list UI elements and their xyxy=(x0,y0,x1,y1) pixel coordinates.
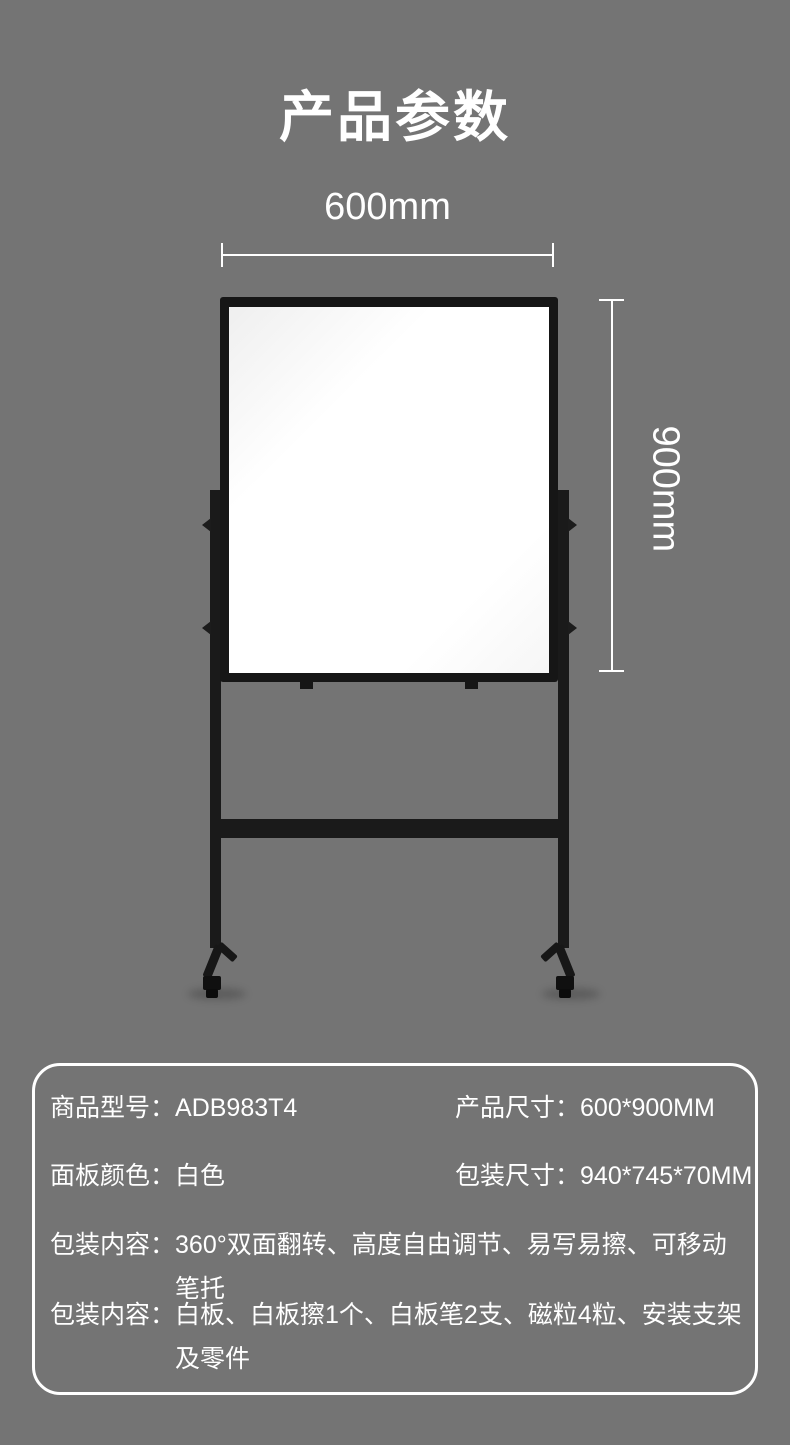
pivot-knob-right-bottom xyxy=(568,621,577,635)
pen-tray-tab-left xyxy=(300,682,313,689)
product-parameters-page: 产品参数 600mm 900mm 商品型号：ADB983T4 产品尺寸：600*… xyxy=(0,0,790,1445)
spec-value-panel-color: 白色 xyxy=(175,1162,225,1190)
spec-value-package-contents: 白板、白板擦1个、白板笔2支、磁粒4粒、安装支架及零件 xyxy=(175,1293,742,1381)
spec-row-panel-color: 面板颜色：白色 xyxy=(50,1161,225,1191)
whiteboard-panel xyxy=(229,307,549,673)
height-dimension-label: 900mm xyxy=(644,426,688,551)
spec-value-package-size: 940*745*70MM xyxy=(580,1162,752,1190)
width-dimension-tick-left xyxy=(221,243,223,267)
height-dimension-tick-top xyxy=(599,299,624,301)
pivot-knob-left-bottom xyxy=(202,621,211,635)
stand-crossbar xyxy=(210,819,569,838)
height-dimension-tick-bottom xyxy=(599,670,624,672)
spec-label-panel-color: 面板颜色： xyxy=(50,1162,175,1190)
width-dimension-line xyxy=(222,254,553,256)
spec-row-model: 商品型号：ADB983T4 xyxy=(50,1093,297,1123)
caster-left xyxy=(203,976,221,990)
width-dimension-tick-right xyxy=(552,243,554,267)
caster-right xyxy=(556,976,574,990)
spec-row-product-size: 产品尺寸：600*900MM xyxy=(455,1093,715,1123)
spec-label-product-size: 产品尺寸： xyxy=(455,1094,580,1122)
caster-wheel-left xyxy=(206,989,218,998)
pivot-knob-left-top xyxy=(202,518,211,532)
spec-card: 商品型号：ADB983T4 产品尺寸：600*900MM 面板颜色：白色 包装尺… xyxy=(32,1063,758,1395)
stand-upright-right xyxy=(558,490,569,948)
spec-value-product-size: 600*900MM xyxy=(580,1094,715,1122)
spec-label-package-contents: 包装内容： xyxy=(50,1293,175,1381)
spec-row-package-size: 包装尺寸：940*745*70MM xyxy=(455,1161,752,1191)
height-dimension-line xyxy=(611,300,613,672)
spec-row-package-contents: 包装内容：白板、白板擦1个、白板笔2支、磁粒4粒、安装支架及零件 xyxy=(50,1293,742,1381)
spec-label-package-size: 包装尺寸： xyxy=(455,1162,580,1190)
spec-label-model: 商品型号： xyxy=(50,1094,175,1122)
width-dimension-label: 600mm xyxy=(222,186,553,229)
spec-value-model: ADB983T4 xyxy=(175,1094,297,1122)
page-title: 产品参数 xyxy=(0,72,790,152)
pivot-knob-right-top xyxy=(568,518,577,532)
caster-wheel-right xyxy=(559,989,571,998)
pen-tray-tab-right xyxy=(465,682,478,689)
